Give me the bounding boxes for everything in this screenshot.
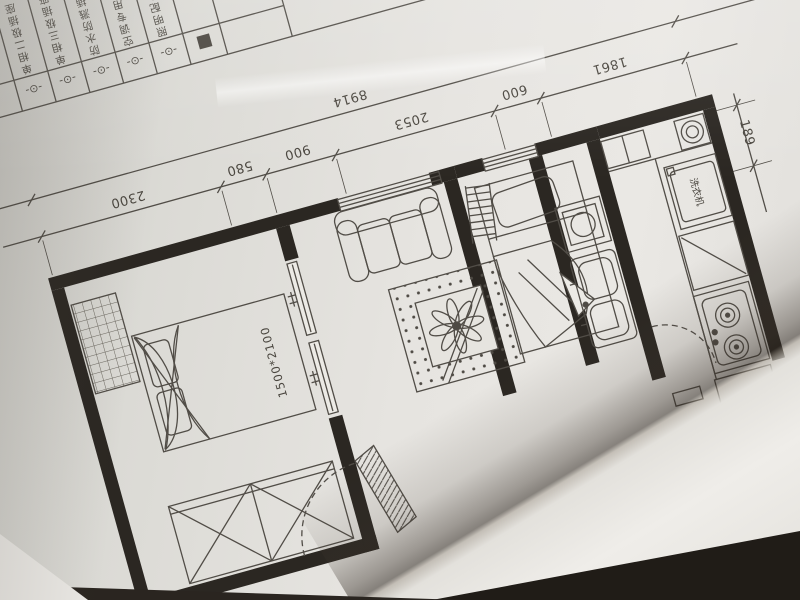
floorplan-photo: 单相二极插座 单相三极插座 防水防溅插座 空调专用插座 照明配电箱 -⊙- -⊙… xyxy=(0,0,800,600)
window-bedroom2 xyxy=(482,143,539,171)
window-living xyxy=(337,170,442,212)
